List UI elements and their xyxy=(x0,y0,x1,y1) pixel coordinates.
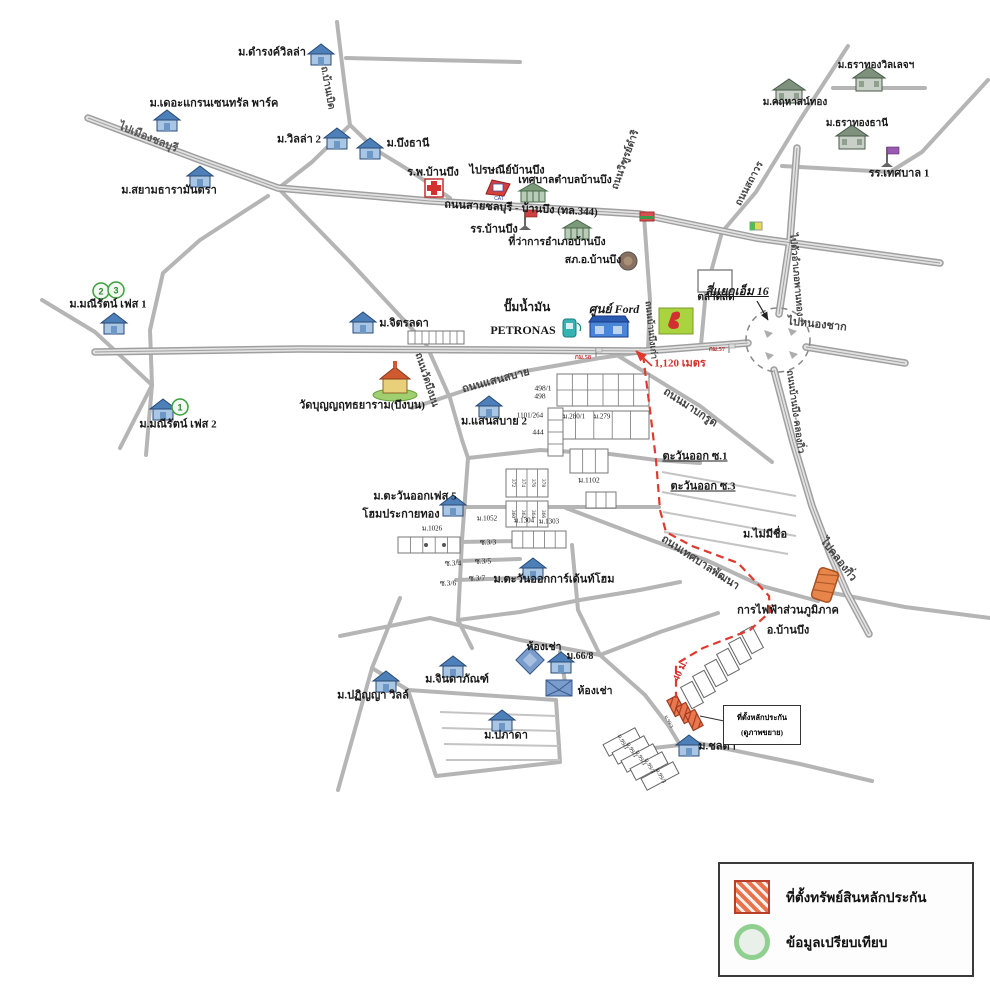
kmflag-icon xyxy=(729,344,735,353)
legend-row-collateral: ที่ตั้งทรัพย์สินหลักประกัน xyxy=(720,880,972,914)
comparison-circle-icon xyxy=(734,924,770,960)
legend: ที่ตั้งทรัพย์สินหลักประกัน ข้อมูลเปรียบเ… xyxy=(718,862,974,977)
map-drawing: CAT xyxy=(0,0,990,986)
collateral-hatched-swatch-icon xyxy=(734,880,770,914)
legend-row-comparison: ข้อมูลเปรียบเทียบ xyxy=(720,924,972,960)
diamond-icon xyxy=(516,646,544,674)
collateral-callout-box: ที่ตั้งหลักประกัน (ดูภาพขยาย) xyxy=(723,705,801,745)
post-icon xyxy=(486,180,510,202)
pea-icon xyxy=(811,567,840,604)
mansion-icon xyxy=(853,67,885,91)
dot-icon xyxy=(442,543,446,547)
house-icon xyxy=(308,44,334,65)
house-icon xyxy=(548,652,574,673)
comparison-number-3-icon: 3 xyxy=(108,282,124,298)
house-icon xyxy=(373,671,399,692)
house-icon xyxy=(440,495,466,516)
dot-icon xyxy=(424,543,428,547)
map-canvas: CAT xyxy=(0,0,990,986)
house-icon xyxy=(476,396,502,417)
legend-label-collateral: ที่ตั้งทรัพย์สินหลักประกัน xyxy=(786,886,927,908)
collateral-callout-line2: (ดูภาพขยาย) xyxy=(741,727,783,739)
house-icon xyxy=(101,313,127,334)
signB-icon xyxy=(750,222,762,230)
rentrect-icon xyxy=(546,680,572,696)
signA-icon xyxy=(640,212,654,221)
temple-icon xyxy=(373,361,417,401)
market-icon xyxy=(698,270,732,292)
house-icon xyxy=(357,138,383,159)
legend-label-comparison: ข้อมูลเปรียบเทียบ xyxy=(786,931,887,953)
comparison-number-2-icon: 2 xyxy=(93,283,109,299)
mansion-icon xyxy=(773,79,805,103)
svg-text:2: 2 xyxy=(98,287,103,297)
mansion-icon xyxy=(836,125,868,149)
house-icon xyxy=(520,558,546,579)
house-icon xyxy=(440,656,466,677)
hospital-icon xyxy=(425,179,443,197)
svg-text:1: 1 xyxy=(177,403,182,413)
greensign-icon xyxy=(659,308,693,334)
gov-icon xyxy=(563,220,591,239)
flag-purple-icon xyxy=(881,147,899,167)
police-icon xyxy=(619,252,637,270)
gov-icon xyxy=(519,183,547,202)
house-icon xyxy=(187,166,213,187)
house-icon xyxy=(676,735,702,756)
pump-icon xyxy=(563,319,581,337)
house-icon xyxy=(350,312,376,333)
svg-text:3: 3 xyxy=(113,286,118,296)
flag-red-icon xyxy=(519,210,537,230)
collateral-callout-line1: ที่ตั้งหลักประกัน xyxy=(737,712,787,724)
ford-icon xyxy=(589,316,629,337)
comparison-number-1-icon: 1 xyxy=(172,399,188,415)
house-icon xyxy=(154,110,180,131)
